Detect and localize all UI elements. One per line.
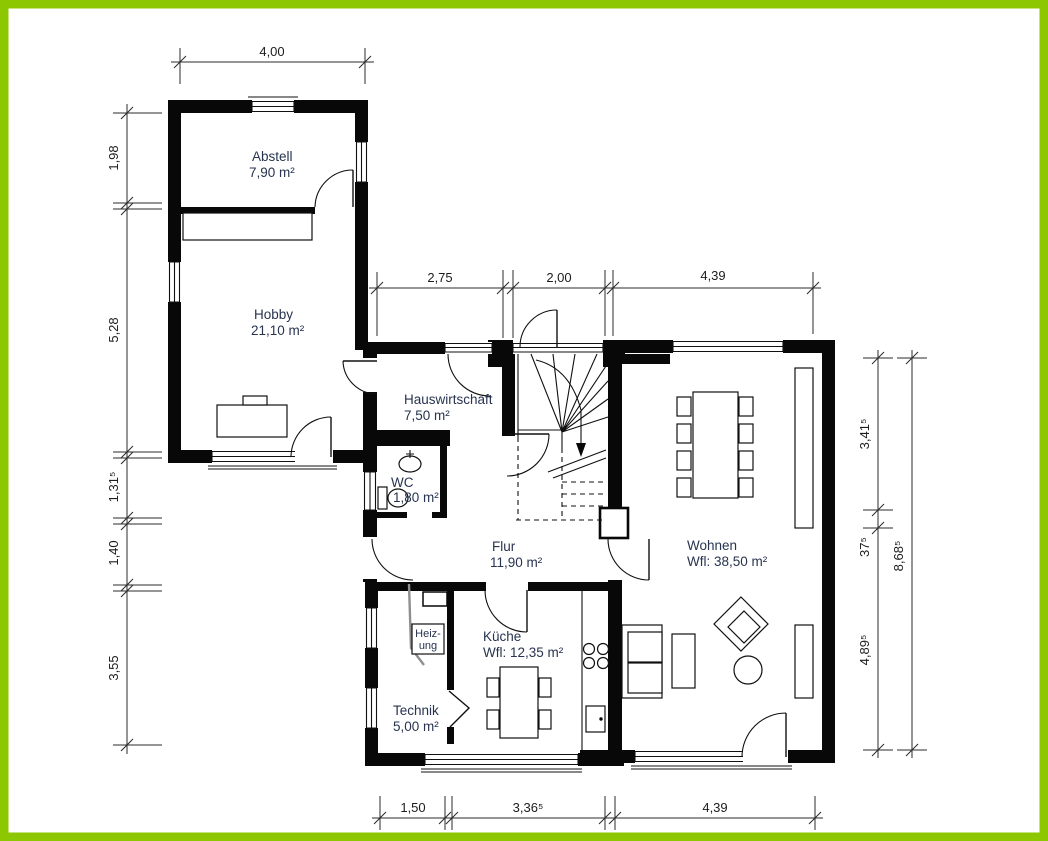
room-label-hauswirtschaft: Hauswirtschaft	[404, 392, 493, 407]
sideboard-lower	[795, 625, 813, 698]
door-opening	[295, 450, 333, 463]
dining-table	[677, 392, 753, 498]
wall	[528, 582, 622, 591]
wall	[822, 340, 835, 763]
room-label-hobby: Hobby	[254, 307, 293, 322]
stair-direction-arrow	[576, 443, 586, 457]
window-abstell-north	[248, 97, 298, 113]
dim-left-0: 1,98	[106, 145, 121, 170]
door-wc	[372, 539, 413, 580]
dim-bottom-0: 1,50	[400, 800, 425, 815]
dim-right-1: 37⁵	[857, 537, 872, 557]
dimension-top: 4,00	[171, 44, 374, 84]
wall	[502, 354, 515, 436]
room-area-abstell: 7,90 m²	[249, 165, 295, 180]
wall	[447, 727, 454, 744]
room-area-hobby: 21,10 m²	[251, 323, 305, 338]
room-area-flur: 11,90 m²	[490, 555, 543, 570]
wall	[355, 100, 368, 350]
stair-winder-treads	[531, 354, 608, 432]
sideboard-upper	[795, 368, 813, 528]
stair-break-line	[548, 450, 606, 478]
room-label-wc: WC	[391, 475, 414, 490]
coffee-table	[672, 634, 695, 688]
side-table	[734, 656, 762, 684]
window-technik-west-2	[365, 688, 378, 728]
chimney-block	[600, 508, 628, 538]
desk	[217, 396, 287, 437]
wall	[580, 750, 624, 766]
wall	[447, 590, 454, 690]
wall-beam	[620, 354, 670, 364]
dimension-right: 3,41⁵ 37⁵ 4,89⁵ 8,68⁵	[857, 350, 927, 758]
room-label-flur: Flur	[492, 539, 516, 554]
dim-top-width: 4,00	[259, 44, 284, 59]
dimension-bottom: 1,50 3,36⁵ 4,39	[372, 796, 823, 830]
dim-left-4: 3,55	[106, 655, 121, 680]
dim-right-0: 3,41⁵	[857, 419, 872, 450]
stairs	[516, 354, 608, 520]
dim-bottom-1: 3,36⁵	[513, 800, 544, 815]
sofa	[622, 625, 662, 698]
wall	[363, 430, 450, 446]
kitchen-sink	[586, 706, 605, 732]
wall-niche	[423, 592, 447, 606]
stair-treads-dashed	[562, 482, 606, 506]
wardrobe	[183, 213, 312, 240]
dim-left-3: 1,40	[106, 540, 121, 565]
door-kueche-technik	[449, 691, 469, 727]
room-label-wohnen: Wohnen	[687, 538, 737, 553]
door-opening	[363, 358, 377, 392]
dim-left-1: 5,28	[106, 317, 121, 342]
heater: Heiz- ung	[412, 624, 444, 654]
door-flur-wohnen	[608, 539, 649, 580]
door-abstell	[315, 170, 353, 207]
dim-bottom-2: 4,39	[702, 800, 727, 815]
heater-label-line2: ung	[419, 640, 437, 652]
armchair	[714, 597, 768, 651]
wall	[440, 446, 447, 518]
room-label-abstell: Abstell	[252, 149, 293, 164]
room-label-technik: Technik	[393, 703, 439, 718]
window-kueche-south	[421, 753, 582, 772]
room-area-wohnen: Wfl: 38,50 m²	[687, 554, 768, 569]
door-opening	[742, 750, 788, 763]
door-flur-kueche	[485, 590, 527, 632]
dim-upper-1: 2,00	[546, 270, 571, 285]
door-hauswirtschaft-terrace	[448, 354, 490, 396]
room-area-kueche: Wfl: 12,35 m²	[483, 645, 564, 660]
heater-label-line1: Heiz-	[415, 628, 441, 640]
door-hauswirtschaft-flur	[507, 434, 549, 476]
wall	[365, 582, 486, 591]
door-entrance-north	[520, 310, 557, 347]
window-technik-west-1	[365, 608, 378, 648]
dim-right-2: 4,89⁵	[857, 635, 872, 666]
floor-plan-page: Heiz- ung Abstell 7,90 m² Hobby 21,10 m²…	[0, 0, 1048, 841]
cooktop	[584, 644, 609, 669]
door-opening	[363, 537, 377, 579]
dim-left-2: 1,31⁵	[106, 472, 121, 503]
floor-plan-drawing: Heiz- ung Abstell 7,90 m² Hobby 21,10 m²…	[0, 0, 1048, 841]
dimension-upper-middle: 2,75 2,00 4,39	[369, 268, 821, 338]
room-area-wc: 1,80 m²	[393, 490, 439, 505]
window-wohnen-north	[673, 340, 783, 353]
room-area-hauswirtschaft: 7,50 m²	[404, 408, 450, 423]
window-entrance-north	[513, 342, 603, 354]
dimension-left: 1,98 5,28 1,31⁵ 1,40 3,55	[106, 104, 162, 754]
dim-right-total: 8,68⁵	[891, 541, 906, 572]
wash-basin	[399, 450, 421, 472]
kitchen-table	[487, 667, 551, 738]
wall	[608, 580, 622, 752]
dim-upper-0: 2,75	[427, 270, 452, 285]
stair-edge-dashed	[518, 437, 562, 520]
room-label-kueche: Küche	[483, 629, 521, 644]
window-abstell-east	[355, 142, 368, 182]
window-hobby-west	[168, 262, 181, 302]
window-hauswirtschaft-north	[445, 342, 492, 354]
wall	[363, 512, 407, 518]
wall	[432, 512, 447, 518]
dim-upper-2: 4,39	[700, 268, 725, 283]
room-area-technik: 5,00 m²	[393, 719, 439, 734]
window-wc-west	[363, 472, 377, 510]
